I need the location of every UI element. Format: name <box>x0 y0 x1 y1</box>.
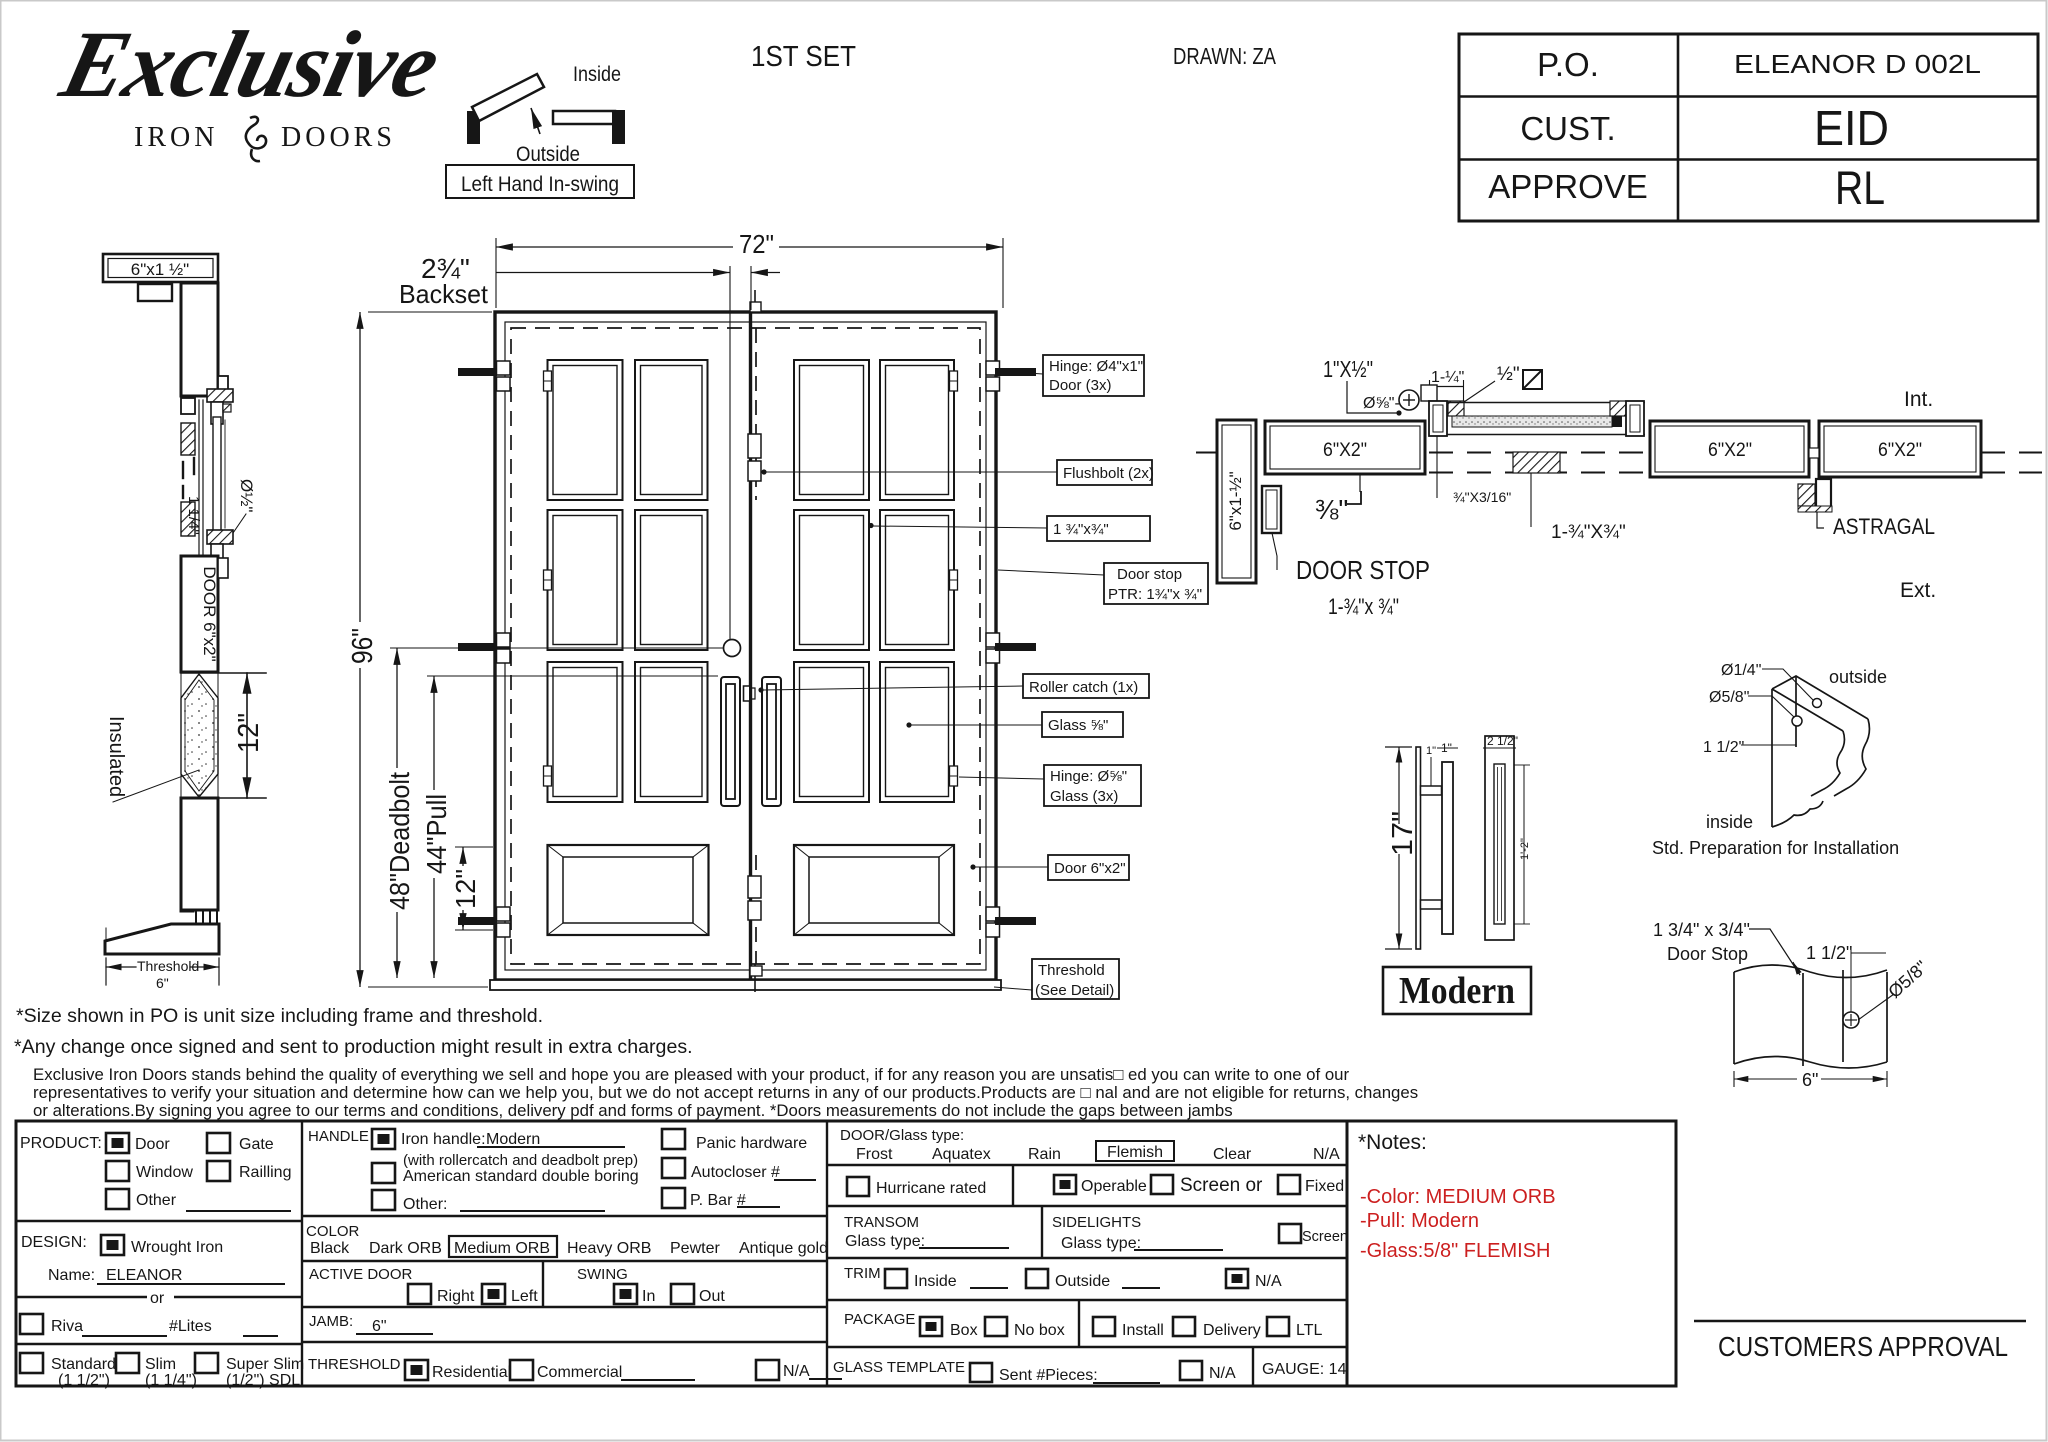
svg-text:ACTIVE DOOR: ACTIVE DOOR <box>309 1266 413 1283</box>
svg-text:Clear: Clear <box>1213 1146 1252 1163</box>
svg-text:44"Pull: 44"Pull <box>421 794 452 874</box>
svg-text:Backset: Backset <box>399 279 489 309</box>
svg-text:Ø⅝"-: Ø⅝"- <box>1363 395 1400 412</box>
svg-text:Standard: Standard <box>51 1356 116 1373</box>
svg-text:72": 72" <box>739 229 774 259</box>
svg-text:Operable: Operable <box>1081 1178 1147 1195</box>
svg-text:SWING: SWING <box>577 1266 628 1283</box>
svg-text:*Notes:: *Notes: <box>1358 1131 1427 1154</box>
svg-text:Commercial: Commercial <box>537 1364 622 1381</box>
svg-text:or alterations.By signing you: or alterations.By signing you agree to o… <box>33 1101 1233 1120</box>
svg-text:DOOR 6"x2": DOOR 6"x2" <box>200 566 219 661</box>
svg-text:1 3/4" x 3/4": 1 3/4" x 3/4" <box>1653 920 1750 940</box>
svg-text:1ST SET: 1ST SET <box>751 41 856 73</box>
svg-text:Delivery: Delivery <box>1203 1322 1261 1339</box>
svg-text:P.O.: P.O. <box>1537 46 1599 83</box>
svg-text:1 ¾"x¾": 1 ¾"x¾" <box>1053 521 1109 538</box>
svg-text:6": 6" <box>372 1318 387 1335</box>
svg-text:Aquatex: Aquatex <box>932 1146 991 1163</box>
svg-text:6"X2": 6"X2" <box>1323 440 1367 461</box>
svg-text:APPROVE: APPROVE <box>1488 168 1648 205</box>
svg-text:Door Stop: Door Stop <box>1667 944 1748 964</box>
svg-text:RL: RL <box>1835 161 1885 214</box>
svg-text:CUST.: CUST. <box>1520 110 1615 147</box>
svg-text:Door: Door <box>135 1136 170 1153</box>
svg-text:Residential: Residential <box>432 1364 511 1381</box>
svg-text:Hinge: Ø4"x1": Hinge: Ø4"x1" <box>1049 358 1143 375</box>
svg-text:Hinge: Ø⅝": Hinge: Ø⅝" <box>1050 768 1127 785</box>
svg-text:ELEANOR: ELEANOR <box>106 1267 182 1284</box>
svg-text:Left: Left <box>511 1288 538 1305</box>
svg-text:Install: Install <box>1122 1322 1164 1339</box>
svg-text:⅜": ⅜" <box>1315 494 1348 525</box>
svg-text:inside: inside <box>1706 812 1753 832</box>
svg-text:1 1/4": 1 1/4" <box>185 496 202 535</box>
svg-text:Dark ORB: Dark ORB <box>369 1240 442 1257</box>
svg-text:Left Hand In-swing: Left Hand In-swing <box>461 173 619 196</box>
svg-text:Window: Window <box>136 1164 193 1181</box>
svg-text:Ø1/4": Ø1/4" <box>1721 662 1761 679</box>
svg-text:Glass type:: Glass type: <box>1061 1235 1141 1252</box>
svg-text:-Color: MEDIUM ORB: -Color: MEDIUM ORB <box>1360 1186 1556 1208</box>
svg-text:Glass (3x): Glass (3x) <box>1050 788 1118 805</box>
svg-text:1-¼": 1-¼" <box>1431 369 1464 386</box>
svg-text:COLOR: COLOR <box>306 1223 360 1240</box>
svg-text:Wrought Iron: Wrought Iron <box>131 1239 223 1256</box>
svg-text:Box: Box <box>950 1322 978 1339</box>
svg-text:1'-2": 1'-2" <box>1519 838 1531 860</box>
svg-text:THRESHOLD: THRESHOLD <box>308 1356 401 1373</box>
svg-text:1": 1" <box>1426 745 1436 757</box>
svg-text:Slim: Slim <box>145 1356 176 1373</box>
svg-text:Screen or: Screen or <box>1180 1175 1263 1196</box>
svg-text:Ext.: Ext. <box>1900 579 1936 602</box>
svg-text:In: In <box>642 1288 655 1305</box>
svg-text:Gate: Gate <box>239 1136 274 1153</box>
svg-text:DESIGN:: DESIGN: <box>21 1234 87 1251</box>
svg-text:½": ½" <box>1497 364 1520 385</box>
svg-text:ASTRAGAL: ASTRAGAL <box>1833 514 1935 539</box>
svg-text:Glass type:: Glass type: <box>845 1233 925 1250</box>
svg-text:(1 1/4"): (1 1/4") <box>145 1372 197 1389</box>
svg-text:Right: Right <box>437 1288 475 1305</box>
svg-text:1-¾"X¾": 1-¾"X¾" <box>1551 522 1626 543</box>
svg-text:Door (3x): Door (3x) <box>1049 377 1112 394</box>
svg-text:TRANSOM: TRANSOM <box>844 1214 919 1231</box>
svg-text:TRIM: TRIM <box>844 1265 881 1282</box>
svg-text:6"X2": 6"X2" <box>1878 440 1922 461</box>
svg-text:(with rollercatch and deadbolt: (with rollercatch and deadbolt prep) <box>403 1152 638 1169</box>
svg-text:Flushbolt (2x): Flushbolt (2x) <box>1063 465 1154 482</box>
svg-text:1-¾"x ¾": 1-¾"x ¾" <box>1328 594 1399 619</box>
svg-text:IRON: IRON <box>134 122 218 153</box>
svg-text:Railling: Railling <box>239 1164 291 1181</box>
svg-text:Ø½": Ø½" <box>237 479 256 512</box>
svg-text:Modern: Modern <box>486 1131 540 1148</box>
svg-text:12": 12" <box>450 869 481 909</box>
svg-text:PACKAGE: PACKAGE <box>844 1311 915 1328</box>
svg-text:(1 1/2"): (1 1/2") <box>58 1372 110 1389</box>
svg-text:Hurricane rated: Hurricane rated <box>876 1180 986 1197</box>
svg-text:outside: outside <box>1829 667 1887 687</box>
svg-text:48"Deadbolt: 48"Deadbolt <box>384 772 415 910</box>
svg-text:6"x1-½": 6"x1-½" <box>1226 471 1245 530</box>
svg-text:Threshold: Threshold <box>137 958 199 974</box>
svg-text:CUSTOMERS APPROVAL: CUSTOMERS APPROVAL <box>1718 1331 2008 1362</box>
svg-text:Modern: Modern <box>1399 970 1515 1012</box>
svg-text:American standard double borin: American standard double boring <box>403 1168 639 1185</box>
svg-text:EID: EID <box>1814 102 1889 156</box>
svg-text:Int.: Int. <box>1904 388 1933 411</box>
svg-text:No box: No box <box>1014 1322 1065 1339</box>
svg-text:Rain: Rain <box>1028 1146 1061 1163</box>
svg-text:6": 6" <box>156 975 169 991</box>
svg-text:Black: Black <box>310 1240 350 1257</box>
svg-text:6": 6" <box>1802 1070 1818 1090</box>
svg-text:(1/2") SDL: (1/2") SDL <box>226 1372 300 1389</box>
svg-text:Exclusive: Exclusive <box>51 11 449 116</box>
svg-text:DOOR STOP: DOOR STOP <box>1296 555 1430 585</box>
svg-text:Outside: Outside <box>516 143 580 166</box>
svg-text:2 1/2": 2 1/2" <box>1487 734 1518 748</box>
svg-text:DRAWN: ZA: DRAWN: ZA <box>1173 43 1277 69</box>
svg-text:N/A: N/A <box>1209 1365 1236 1382</box>
svg-text:JAMB:: JAMB: <box>309 1313 353 1330</box>
svg-text:Inside: Inside <box>914 1273 957 1290</box>
svg-text:Other: Other <box>136 1192 177 1209</box>
svg-text:DOORS: DOORS <box>281 122 396 153</box>
svg-text:Std. Preparation for Installat: Std. Preparation for Installation <box>1652 838 1899 858</box>
svg-text:LTL: LTL <box>1296 1322 1322 1339</box>
svg-text:Panic hardware: Panic hardware <box>696 1135 807 1152</box>
svg-text:DOOR/Glass type:: DOOR/Glass type: <box>840 1127 964 1144</box>
svg-text:Medium ORB: Medium ORB <box>454 1240 550 1257</box>
svg-text:Heavy ORB: Heavy ORB <box>567 1240 651 1257</box>
svg-text:N/A: N/A <box>1255 1273 1282 1290</box>
svg-text:Frost: Frost <box>856 1146 893 1163</box>
svg-text:Flemish: Flemish <box>1107 1144 1163 1161</box>
svg-text:PTR: 1¾"x ¾": PTR: 1¾"x ¾" <box>1108 586 1202 603</box>
svg-text:Screen: Screen <box>1302 1229 1348 1245</box>
svg-text:1 1/2": 1 1/2" <box>1703 739 1744 756</box>
svg-text:Inside: Inside <box>573 63 621 86</box>
svg-text:PRODUCT:: PRODUCT: <box>20 1135 102 1152</box>
svg-text:1 1/2": 1 1/2" <box>1806 943 1852 963</box>
svg-text:#Lites: #Lites <box>169 1318 212 1335</box>
svg-text:(See Detail): (See Detail) <box>1035 982 1114 999</box>
svg-text:Ø5/8": Ø5/8" <box>1709 689 1749 706</box>
svg-text:*Size shown in PO is unit size: *Size shown in PO is unit size including… <box>16 1005 543 1027</box>
svg-text:Glass ⅝": Glass ⅝" <box>1048 717 1108 734</box>
svg-text:1"X½": 1"X½" <box>1323 356 1373 382</box>
svg-text:HANDLE: HANDLE <box>308 1128 369 1145</box>
svg-text:P. Bar #: P. Bar # <box>690 1192 746 1209</box>
svg-text:Roller catch (1x): Roller catch (1x) <box>1029 679 1138 696</box>
svg-text:N/A: N/A <box>1313 1146 1340 1163</box>
svg-text:*Any change once signed and se: *Any change once signed and sent to prod… <box>14 1036 693 1058</box>
svg-text:6"x1 ½": 6"x1 ½" <box>131 260 189 279</box>
svg-text:Name:: Name: <box>48 1267 95 1284</box>
svg-text:Out: Out <box>699 1288 725 1305</box>
svg-text:Pewter: Pewter <box>670 1240 720 1257</box>
svg-text:Autocloser #: Autocloser # <box>691 1164 780 1181</box>
svg-text:-Pull: Modern: -Pull: Modern <box>1360 1210 1479 1232</box>
svg-text:SIDELIGHTS: SIDELIGHTS <box>1052 1214 1141 1231</box>
svg-text:12": 12" <box>233 713 265 753</box>
svg-text:96": 96" <box>347 628 379 664</box>
svg-text:GAUGE: 14: GAUGE: 14 <box>1262 1361 1347 1378</box>
svg-text:17": 17" <box>1387 811 1419 856</box>
svg-text:GLASS TEMPLATE: GLASS TEMPLATE <box>833 1359 965 1376</box>
svg-text:Outside: Outside <box>1055 1273 1110 1290</box>
svg-text:Exclusive Iron Doors stands be: Exclusive Iron Doors stands behind the q… <box>33 1065 1350 1084</box>
svg-text:ELEANOR D 002L: ELEANOR D 002L <box>1734 49 1981 79</box>
svg-text:6"X2": 6"X2" <box>1708 440 1752 461</box>
svg-text:representatives to verify your: representatives to verify your situation… <box>33 1083 1418 1102</box>
svg-text:-Glass:5/8" FLEMISH: -Glass:5/8" FLEMISH <box>1360 1240 1550 1262</box>
svg-text:Threshold: Threshold <box>1038 962 1105 979</box>
svg-text:or: or <box>150 1290 165 1307</box>
svg-text:N/A: N/A <box>783 1363 810 1380</box>
svg-text:Door stop: Door stop <box>1117 566 1182 583</box>
svg-text:Iron handle:: Iron handle: <box>401 1131 486 1148</box>
svg-text:Insulated: Insulated <box>105 716 127 797</box>
svg-text:Door 6"x2": Door 6"x2" <box>1054 860 1126 877</box>
svg-text:Riva: Riva <box>51 1318 83 1335</box>
svg-text:Super Slim: Super Slim <box>226 1356 304 1373</box>
svg-text:Other:: Other: <box>403 1196 447 1213</box>
svg-text:Sent #Pieces:: Sent #Pieces: <box>999 1367 1098 1384</box>
svg-text:Fixed: Fixed <box>1305 1178 1344 1195</box>
svg-text:¾"X3/16": ¾"X3/16" <box>1453 489 1511 505</box>
svg-text:Antique gold: Antique gold <box>739 1240 828 1257</box>
